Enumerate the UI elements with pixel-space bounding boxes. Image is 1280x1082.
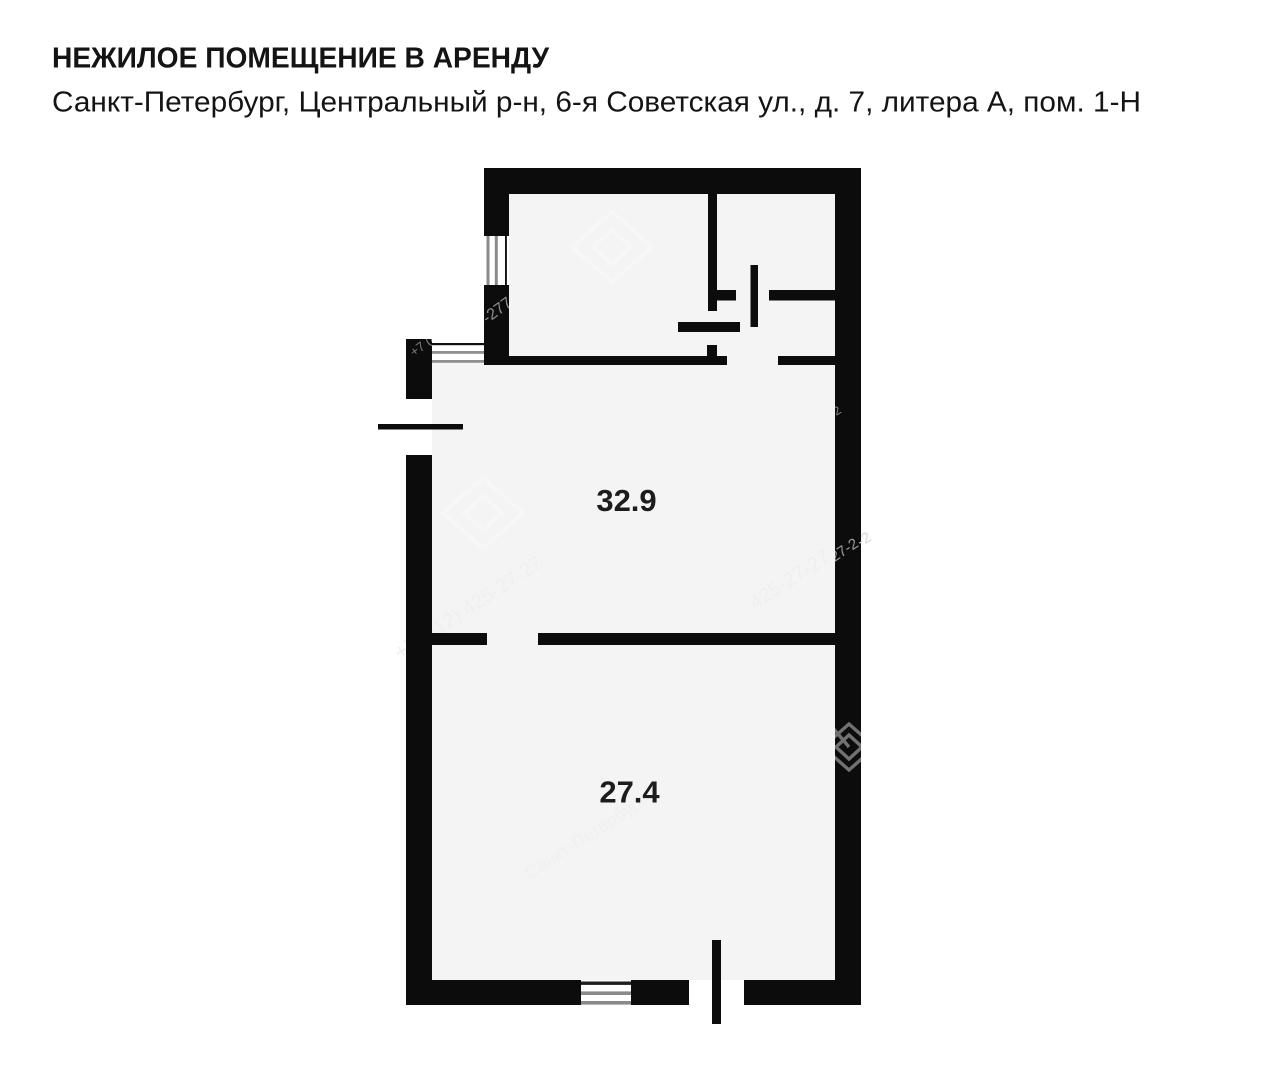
svg-text:32.9: 32.9: [596, 483, 656, 518]
svg-text:НЕЖИЛОЕ ПОМЕЩЕНИЕ В АРЕНДУ: НЕЖИЛОЕ ПОМЕЩЕНИЕ В АРЕНДУ: [52, 43, 549, 75]
svg-text:Санкт-Петербург, Центральный р: Санкт-Петербург, Центральный р-н, 6-я Со…: [52, 87, 1141, 119]
svg-text:27.4: 27.4: [599, 775, 660, 810]
